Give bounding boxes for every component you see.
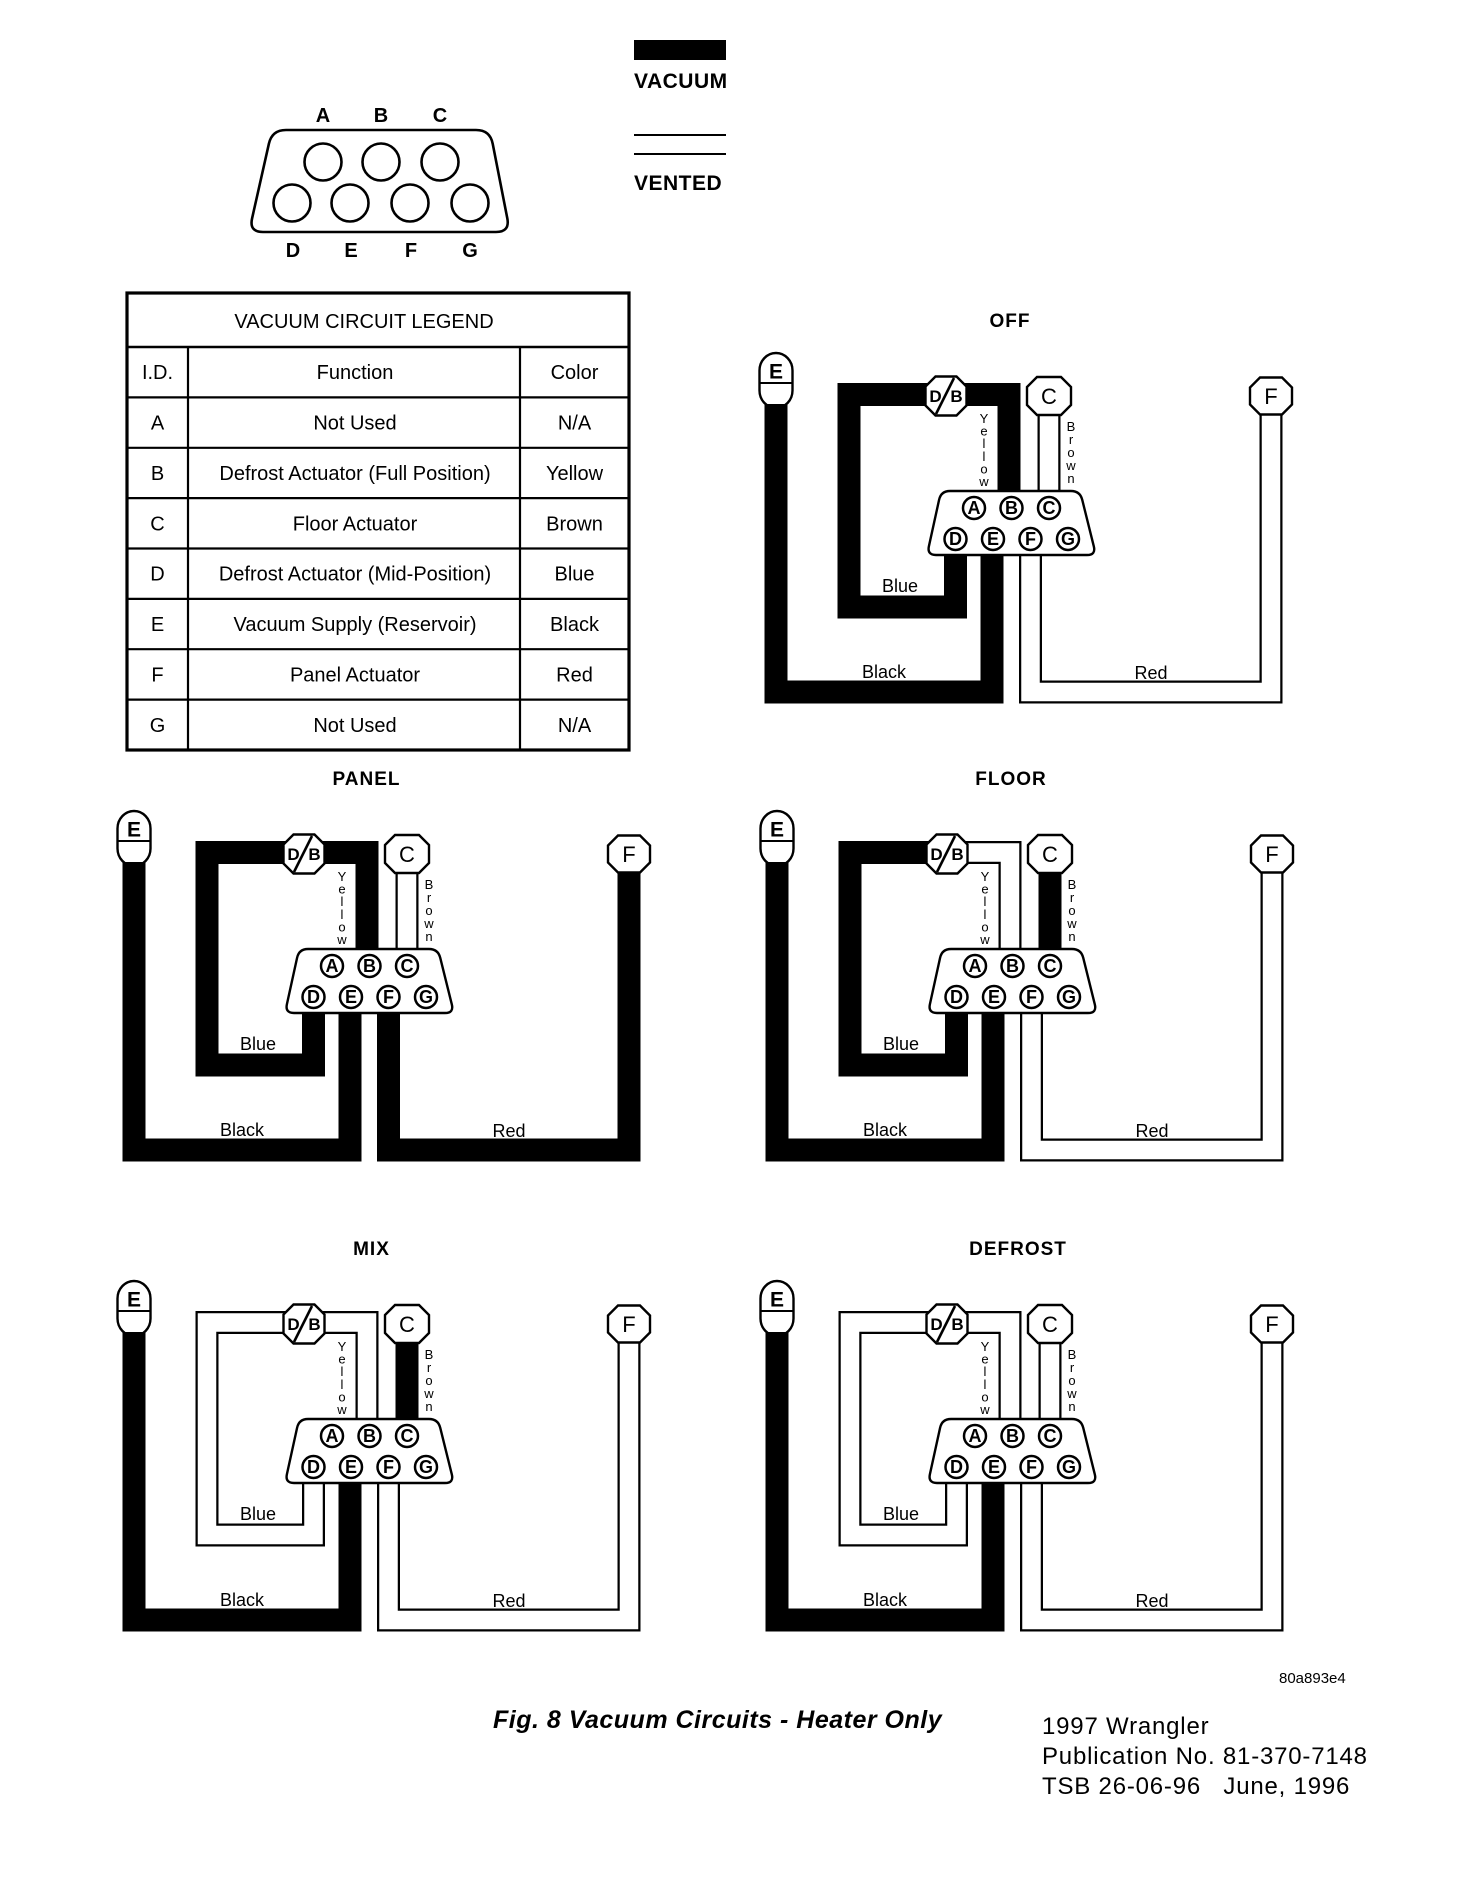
svg-text:G: G	[462, 240, 478, 262]
svg-text:Blue: Blue	[240, 1034, 276, 1054]
svg-text:w: w	[979, 1402, 990, 1417]
svg-text:80a893e4: 80a893e4	[1279, 1670, 1346, 1687]
svg-text:Blue: Blue	[882, 576, 918, 596]
svg-text:A: A	[969, 1426, 982, 1446]
svg-text:Fig. 8 Vacuum Circuits - Heate: Fig. 8 Vacuum Circuits - Heater Only	[493, 1706, 943, 1734]
svg-text:C: C	[1042, 842, 1058, 867]
svg-text:B: B	[1006, 956, 1019, 976]
svg-text:D: D	[930, 1315, 942, 1334]
svg-text:n: n	[1067, 471, 1074, 486]
svg-text:D: D	[929, 387, 941, 406]
svg-text:G: G	[1062, 1457, 1076, 1477]
svg-text:C: C	[1044, 956, 1057, 976]
svg-text:Function: Function	[317, 362, 394, 384]
svg-text:G: G	[419, 987, 433, 1007]
svg-text:D: D	[287, 845, 299, 864]
svg-text:MIX: MIX	[353, 1239, 390, 1260]
svg-text:DEFROST: DEFROST	[969, 1239, 1067, 1260]
svg-text:TSB 26-06-96 June, 1996: TSB 26-06-96 June, 1996	[1042, 1773, 1350, 1800]
svg-text:B: B	[308, 845, 320, 864]
svg-text:Black: Black	[220, 1120, 265, 1140]
svg-text:B: B	[363, 1426, 376, 1446]
svg-text:C: C	[399, 1312, 415, 1337]
svg-text:E: E	[770, 1289, 784, 1312]
svg-text:F: F	[383, 1457, 394, 1477]
svg-text:Black: Black	[862, 662, 907, 682]
svg-text:A: A	[969, 956, 982, 976]
svg-text:F: F	[1026, 987, 1037, 1007]
svg-text:B: B	[151, 463, 164, 485]
svg-text:w: w	[979, 932, 990, 947]
svg-text:E: E	[988, 1457, 1000, 1477]
svg-text:D: D	[930, 845, 942, 864]
svg-text:FLOOR: FLOOR	[975, 769, 1047, 790]
svg-text:F: F	[1265, 842, 1278, 867]
svg-text:N/A: N/A	[558, 715, 592, 737]
svg-text:A: A	[326, 956, 339, 976]
svg-text:B: B	[951, 845, 963, 864]
svg-text:C: C	[150, 513, 164, 535]
svg-text:B: B	[374, 105, 388, 127]
svg-text:E: E	[988, 987, 1000, 1007]
svg-text:D: D	[150, 564, 164, 586]
svg-text:F: F	[151, 664, 163, 686]
svg-text:C: C	[1042, 1312, 1058, 1337]
svg-text:E: E	[344, 240, 357, 262]
svg-text:B: B	[951, 1315, 963, 1334]
svg-text:VACUUM CIRCUIT LEGEND: VACUUM CIRCUIT LEGEND	[234, 311, 493, 333]
svg-text:n: n	[1068, 1399, 1075, 1414]
svg-text:Defrost Actuator (Mid-Position: Defrost Actuator (Mid-Position)	[219, 564, 491, 586]
svg-text:E: E	[151, 614, 164, 636]
svg-text:B: B	[308, 1315, 320, 1334]
svg-text:Blue: Blue	[554, 564, 594, 586]
svg-text:A: A	[316, 105, 330, 127]
svg-text:G: G	[1061, 529, 1075, 549]
svg-text:E: E	[127, 819, 141, 842]
svg-text:B: B	[363, 956, 376, 976]
svg-text:Red: Red	[1135, 1591, 1168, 1611]
svg-text:Black: Black	[863, 1590, 908, 1610]
svg-text:VACUUM: VACUUM	[634, 70, 728, 93]
svg-text:n: n	[425, 929, 432, 944]
svg-text:B: B	[1006, 1426, 1019, 1446]
svg-text:D: D	[286, 240, 300, 262]
svg-text:E: E	[987, 529, 999, 549]
svg-text:A: A	[968, 498, 981, 518]
svg-text:n: n	[425, 1399, 432, 1414]
svg-text:E: E	[770, 819, 784, 842]
svg-text:F: F	[405, 240, 417, 262]
svg-text:Publication No. 81-370-7148: Publication No. 81-370-7148	[1042, 1743, 1368, 1770]
svg-text:F: F	[622, 1312, 635, 1337]
svg-text:E: E	[769, 361, 783, 384]
svg-text:OFF: OFF	[990, 311, 1031, 332]
svg-text:PANEL: PANEL	[333, 769, 401, 790]
svg-text:A: A	[151, 413, 165, 435]
svg-text:w: w	[978, 474, 989, 489]
svg-text:B: B	[950, 387, 962, 406]
svg-text:Not Used: Not Used	[313, 413, 396, 435]
svg-text:C: C	[433, 105, 447, 127]
svg-text:D: D	[287, 1315, 299, 1334]
svg-text:G: G	[150, 715, 166, 737]
svg-text:Blue: Blue	[883, 1034, 919, 1054]
svg-text:Floor Actuator: Floor Actuator	[293, 513, 418, 535]
svg-text:D: D	[950, 1457, 963, 1477]
svg-text:Black: Black	[863, 1120, 908, 1140]
svg-text:Red: Red	[1134, 663, 1167, 683]
svg-text:F: F	[1025, 529, 1036, 549]
svg-text:n: n	[1068, 929, 1075, 944]
svg-text:D: D	[950, 987, 963, 1007]
svg-text:Defrost Actuator (Full Positio: Defrost Actuator (Full Position)	[219, 463, 490, 485]
svg-text:Color: Color	[551, 362, 599, 384]
svg-text:Not Used: Not Used	[313, 715, 396, 737]
svg-text:G: G	[419, 1457, 433, 1477]
svg-text:Red: Red	[492, 1121, 525, 1141]
svg-text:Blue: Blue	[883, 1504, 919, 1524]
svg-text:w: w	[336, 1402, 347, 1417]
svg-text:Red: Red	[556, 664, 593, 686]
svg-text:Vacuum Supply (Reservoir): Vacuum Supply (Reservoir)	[233, 614, 476, 636]
svg-text:Blue: Blue	[240, 1504, 276, 1524]
svg-text:D: D	[949, 529, 962, 549]
svg-text:Yellow: Yellow	[546, 463, 604, 485]
svg-text:C: C	[1044, 1426, 1057, 1446]
svg-text:Brown: Brown	[546, 513, 603, 535]
svg-text:F: F	[1265, 1312, 1278, 1337]
svg-text:C: C	[401, 956, 414, 976]
svg-text:Black: Black	[220, 1590, 265, 1610]
svg-text:C: C	[1043, 498, 1056, 518]
svg-text:C: C	[401, 1426, 414, 1446]
svg-text:VENTED: VENTED	[634, 172, 722, 195]
svg-text:I.D.: I.D.	[142, 362, 173, 384]
svg-text:Red: Red	[1135, 1121, 1168, 1141]
svg-text:F: F	[1264, 384, 1277, 409]
svg-text:D: D	[307, 987, 320, 1007]
svg-text:1997 Wrangler: 1997 Wrangler	[1042, 1713, 1209, 1740]
svg-text:Panel Actuator: Panel Actuator	[290, 664, 420, 686]
svg-text:F: F	[383, 987, 394, 1007]
svg-text:D: D	[307, 1457, 320, 1477]
svg-text:w: w	[336, 932, 347, 947]
svg-text:F: F	[622, 842, 635, 867]
svg-text:F: F	[1026, 1457, 1037, 1477]
svg-text:Black: Black	[550, 614, 600, 636]
svg-text:C: C	[399, 842, 415, 867]
svg-text:B: B	[1005, 498, 1018, 518]
svg-text:Red: Red	[492, 1591, 525, 1611]
svg-text:G: G	[1062, 987, 1076, 1007]
svg-text:E: E	[127, 1289, 141, 1312]
svg-text:E: E	[345, 1457, 357, 1477]
svg-text:N/A: N/A	[558, 413, 592, 435]
svg-text:A: A	[326, 1426, 339, 1446]
svg-text:E: E	[345, 987, 357, 1007]
svg-text:C: C	[1041, 384, 1057, 409]
